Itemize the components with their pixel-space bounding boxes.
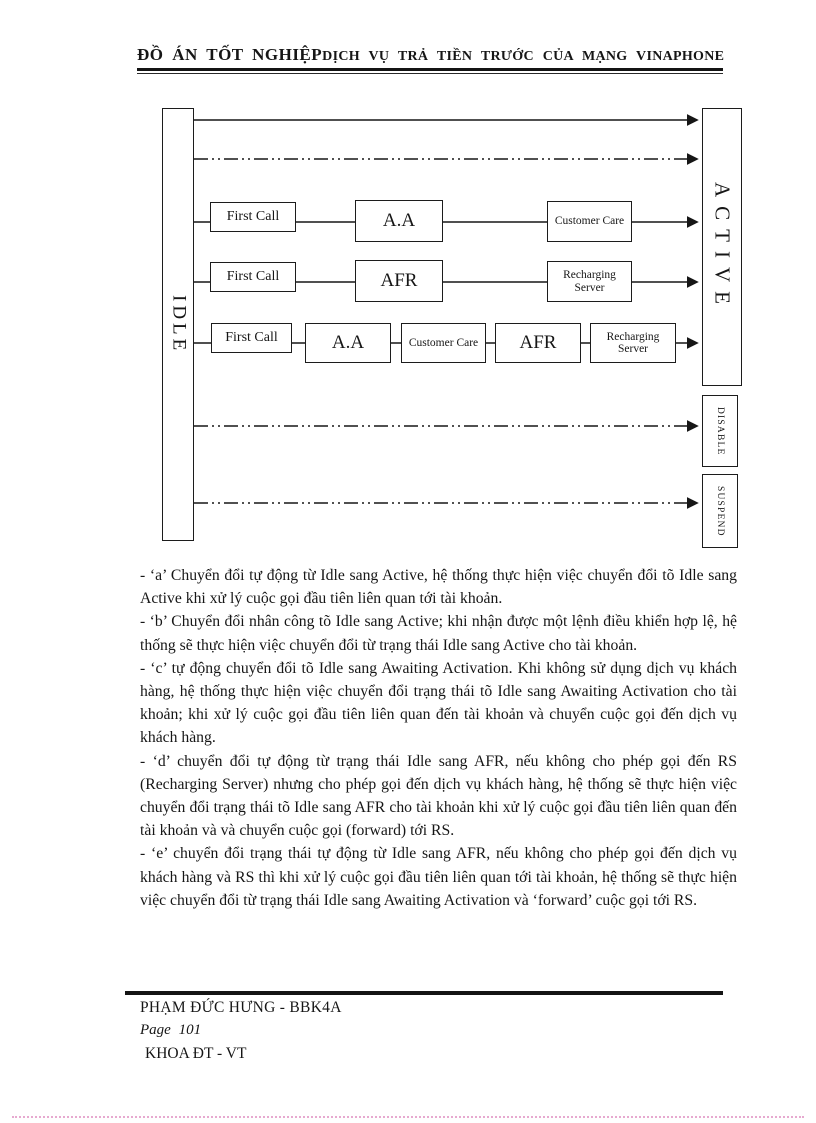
body-text: - ‘a’ Chuyển đổi tự động từ Idle sang Ac…: [140, 564, 737, 912]
paragraph-d: - ‘d’ chuyển đổi tự động từ trạng thái I…: [140, 750, 737, 843]
paragraph-b: - ‘b’ Chuyển đổi nhân công tõ Idle sang …: [140, 610, 737, 656]
document-page: ĐỒ ÁN TỐT NGHIỆP DỊCH VỤ TRẢ TIỀN TRƯỚC …: [0, 0, 816, 1123]
row3-aa-box: A.A: [305, 323, 391, 363]
row3-customer-care-box: Customer Care: [401, 323, 486, 363]
footer-department: KHOA ĐT - VT: [145, 1045, 246, 1063]
active-state-box: ACTIVE: [702, 108, 742, 386]
page-bottom-dotted-line: [12, 1116, 804, 1118]
disable-state-box: DISABLE: [702, 395, 738, 467]
row3-first-call-box: First Call: [211, 323, 292, 353]
footer-rule: [125, 991, 723, 995]
footer-author: PHẠM ĐỨC HƯNG - BBK4A: [140, 999, 342, 1017]
state-transition-diagram: IDLE ACTIVE DISABLE SUSPEND First Call A…: [0, 0, 816, 560]
disable-state-label: DISABLE: [715, 407, 725, 456]
active-state-label: ACTIVE: [711, 182, 734, 313]
row2-first-call-box: First Call: [210, 262, 296, 292]
footer-page-number: Page 101: [140, 1022, 201, 1039]
suspend-state-label: SUSPEND: [715, 486, 725, 537]
row3-afr-box: AFR: [495, 323, 581, 363]
row1-first-call-box: First Call: [210, 202, 296, 232]
idle-state-box: IDLE: [162, 108, 194, 541]
paragraph-e: - ‘e’ chuyển đổi trạng thái tự động từ I…: [140, 842, 737, 912]
row3-recharging-server-box: Recharging Server: [590, 323, 676, 363]
row2-recharging-server-box: Recharging Server: [547, 261, 632, 302]
suspend-state-box: SUSPEND: [702, 474, 738, 548]
paragraph-a: - ‘a’ Chuyển đổi tự động từ Idle sang Ac…: [140, 564, 737, 610]
row1-aa-box: A.A: [355, 200, 443, 242]
paragraph-c: - ‘c’ tự động chuyển đổi tõ Idle sang Aw…: [140, 657, 737, 750]
idle-state-label: IDLE: [168, 295, 189, 354]
row1-customer-care-box: Customer Care: [547, 201, 632, 242]
row2-afr-box: AFR: [355, 260, 443, 302]
